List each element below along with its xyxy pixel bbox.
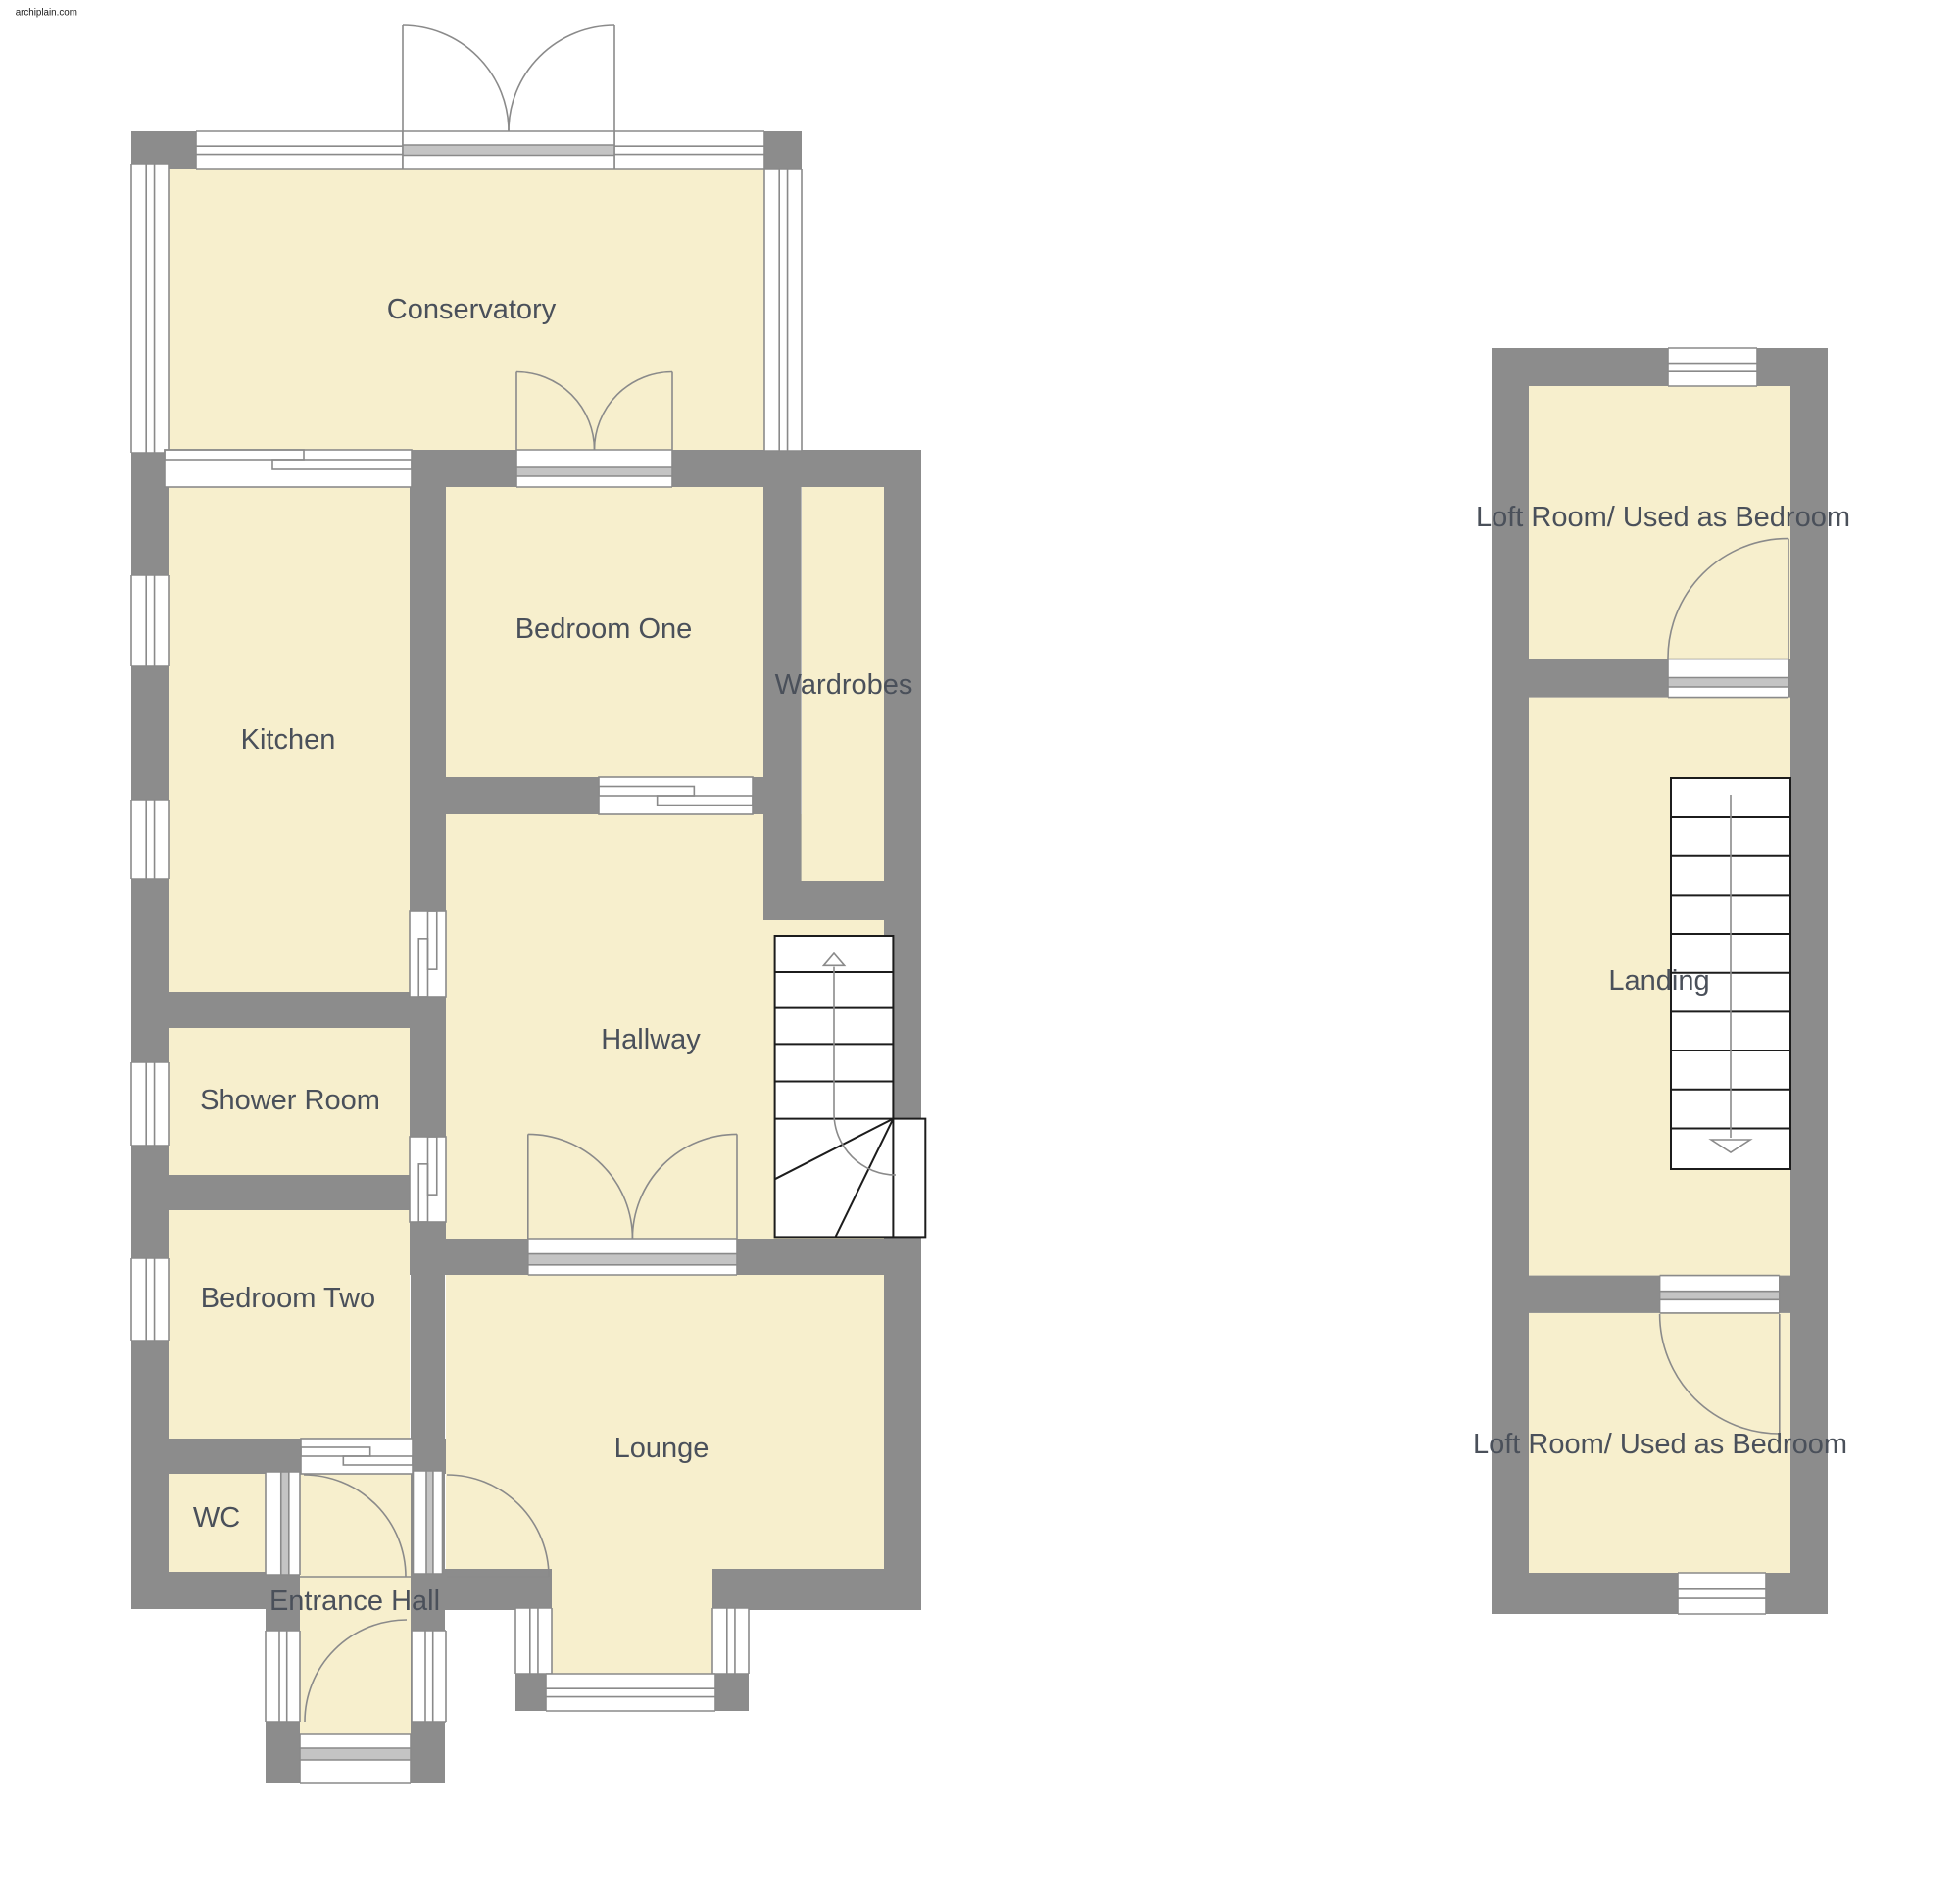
svg-text:Bedroom Two: Bedroom Two xyxy=(201,1283,375,1314)
svg-text:Kitchen: Kitchen xyxy=(241,724,336,756)
svg-text:Wardrobes: Wardrobes xyxy=(775,669,913,701)
svg-text:Hallway: Hallway xyxy=(601,1024,701,1055)
svg-text:Shower Room: Shower Room xyxy=(200,1085,380,1116)
svg-text:Loft Room/ Used as Bedroom: Loft Room/ Used as Bedroom xyxy=(1473,1429,1847,1460)
svg-text:Lounge: Lounge xyxy=(614,1433,710,1464)
svg-text:WC: WC xyxy=(193,1502,240,1534)
svg-text:Landing: Landing xyxy=(1608,965,1709,997)
svg-text:Loft Room/ Used as Bedroom: Loft Room/ Used as Bedroom xyxy=(1476,502,1850,533)
svg-text:Bedroom One: Bedroom One xyxy=(515,613,693,645)
svg-text:Conservatory: Conservatory xyxy=(387,294,557,325)
svg-text:archiplain.com: archiplain.com xyxy=(16,8,77,19)
svg-text:Entrance Hall: Entrance Hall xyxy=(269,1586,440,1617)
